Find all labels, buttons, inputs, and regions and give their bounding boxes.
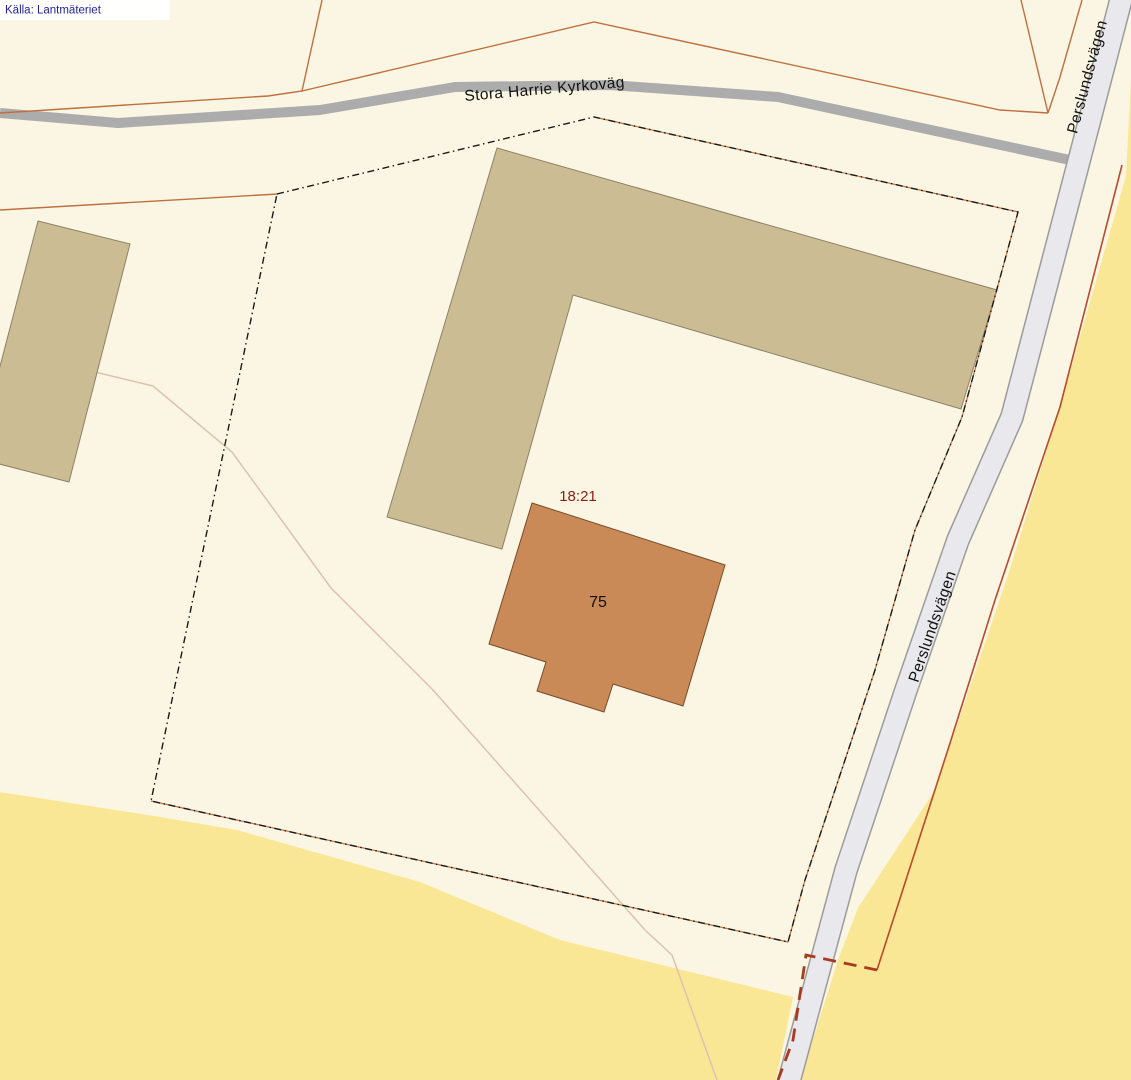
map-canvas: Stora Harrie Kyrkoväg Perslundsvägen Per…: [0, 0, 1131, 1080]
parcel-id-label: 18:21: [559, 488, 597, 505]
building-number-label: 75: [589, 594, 607, 611]
attribution-label: Källa: Lantmäteriet: [5, 5, 102, 17]
map-viewport[interactable]: Stora Harrie Kyrkoväg Perslundsvägen Per…: [0, 0, 1131, 1080]
